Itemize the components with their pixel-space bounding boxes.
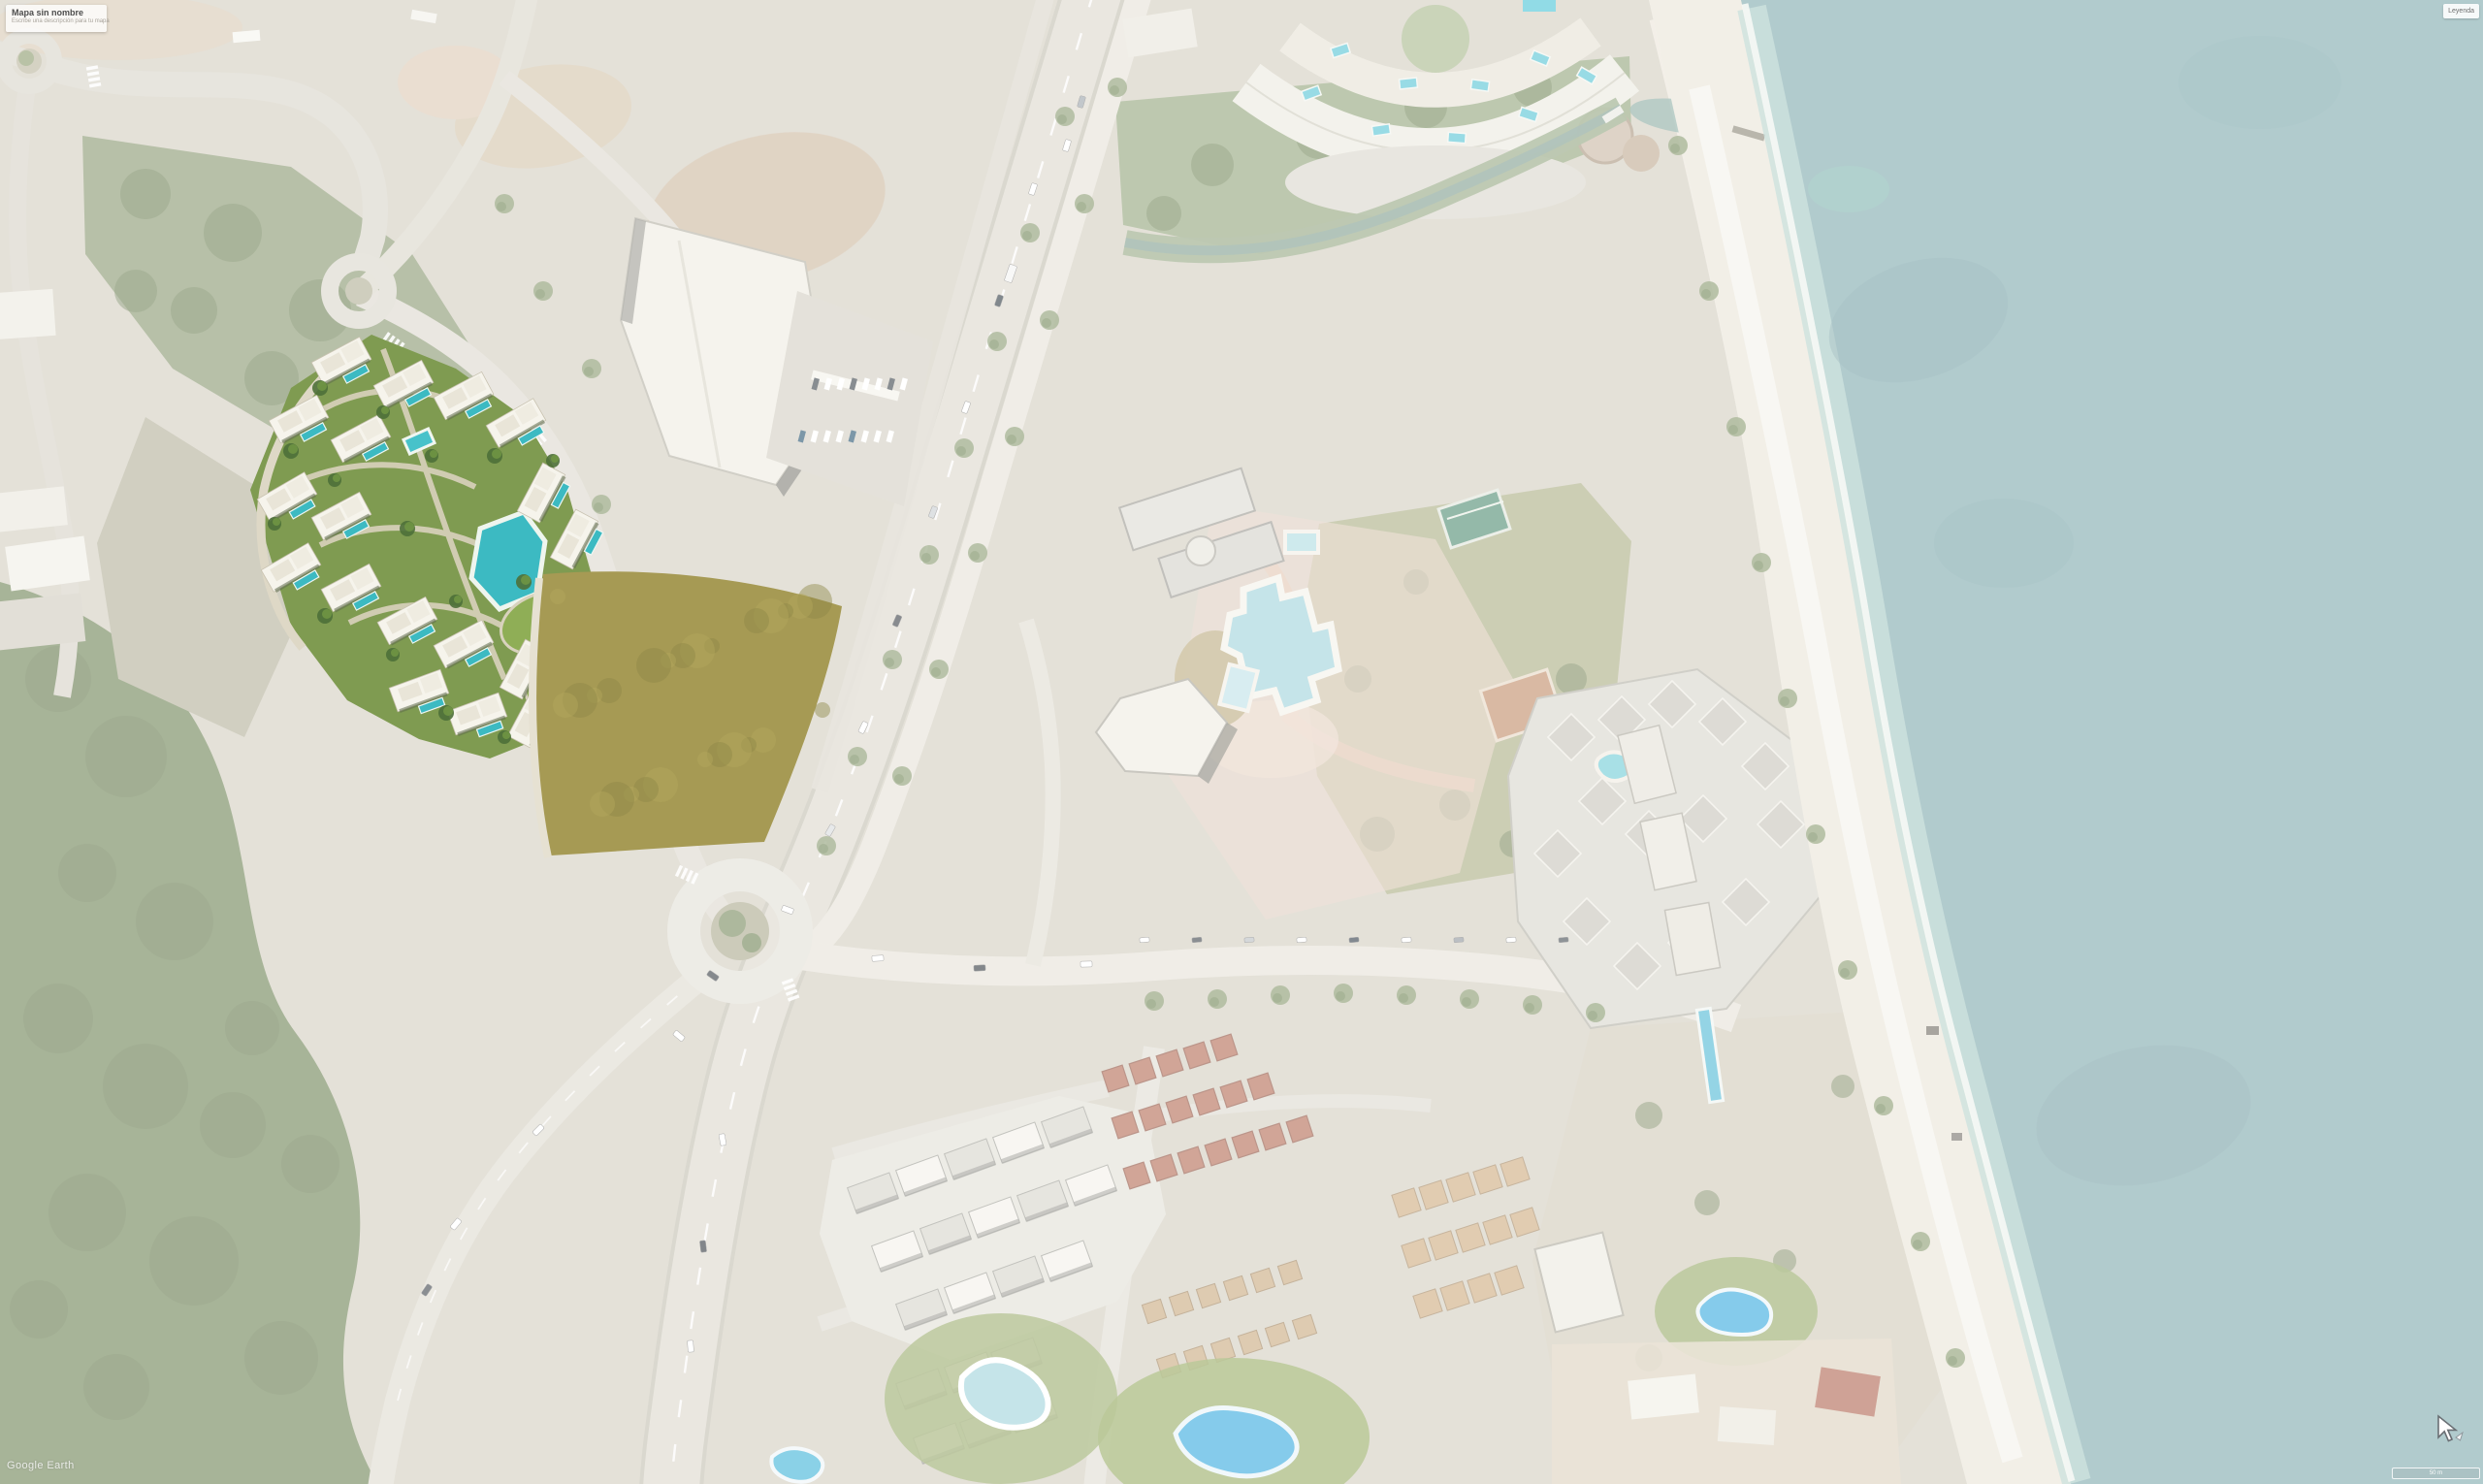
field-patch [636,648,671,683]
satellite-map-canvas[interactable] [0,0,2483,1484]
palm-tree [288,444,298,454]
palm-tree [454,596,462,603]
field-patch [744,608,769,633]
palm-tree [381,406,389,414]
field-patch [590,791,615,817]
field-patch [550,589,565,604]
map-title-card[interactable]: Mapa sin nombre Escribe una descripción … [6,5,107,32]
google-earth-watermark: Google Earth [7,1460,75,1471]
palm-tree [322,609,332,619]
map-description-placeholder[interactable]: Escribe una descripción para tu mapa [12,18,101,25]
scale-bar: 50 m [2392,1468,2480,1479]
faded-overlay [0,0,2483,1484]
palm-tree [317,381,327,391]
palm-tree [492,449,501,459]
scale-label: 50 m [2430,1470,2442,1476]
palm-tree [551,455,559,463]
mouse-cursor-icon [2436,1414,2469,1451]
legend-button[interactable]: Leyenda [2443,4,2479,18]
palm-tree [502,731,510,739]
palm-tree [333,474,340,482]
field-patch [697,752,713,767]
palm-tree [430,450,437,458]
palm-tree [443,706,453,716]
palm-tree [521,575,531,585]
map-viewport[interactable] [0,0,2483,1484]
field-patch [815,702,830,718]
palm-tree [404,522,414,532]
field-patch [553,693,578,718]
palm-tree [391,649,399,657]
map-title[interactable]: Mapa sin nombre [12,8,101,17]
palm-tree [273,518,280,526]
